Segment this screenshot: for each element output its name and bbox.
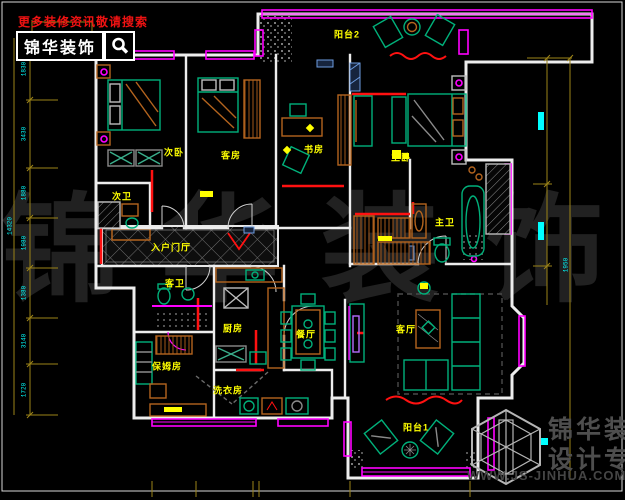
balcony-2-furniture <box>373 15 454 48</box>
master-bedroom-furniture <box>354 76 466 164</box>
secondary-bath-fixtures <box>98 202 138 228</box>
balcony-1-furniture <box>364 420 453 458</box>
study-furniture <box>282 95 351 173</box>
magnifier-icon <box>110 36 130 56</box>
yellow-chips <box>164 124 428 412</box>
floorplan-drawing <box>0 0 625 500</box>
dining-room-furniture <box>281 294 335 370</box>
brand-logo: 锦华装饰 <box>16 31 104 61</box>
cad-floorplan-page: 锦华装饰 <box>0 0 625 500</box>
search-button[interactable] <box>104 31 135 61</box>
kitchen-fixtures <box>216 268 284 368</box>
nanny-room-furniture <box>136 336 206 416</box>
search-hint-text: 更多装修资讯敬请搜索 <box>18 13 148 30</box>
brand-logo-text: 锦华装饰 <box>24 34 96 58</box>
secondary-bedroom-furniture <box>97 65 162 166</box>
living-room-furniture <box>349 282 502 394</box>
guest-room-furniture <box>198 78 260 138</box>
